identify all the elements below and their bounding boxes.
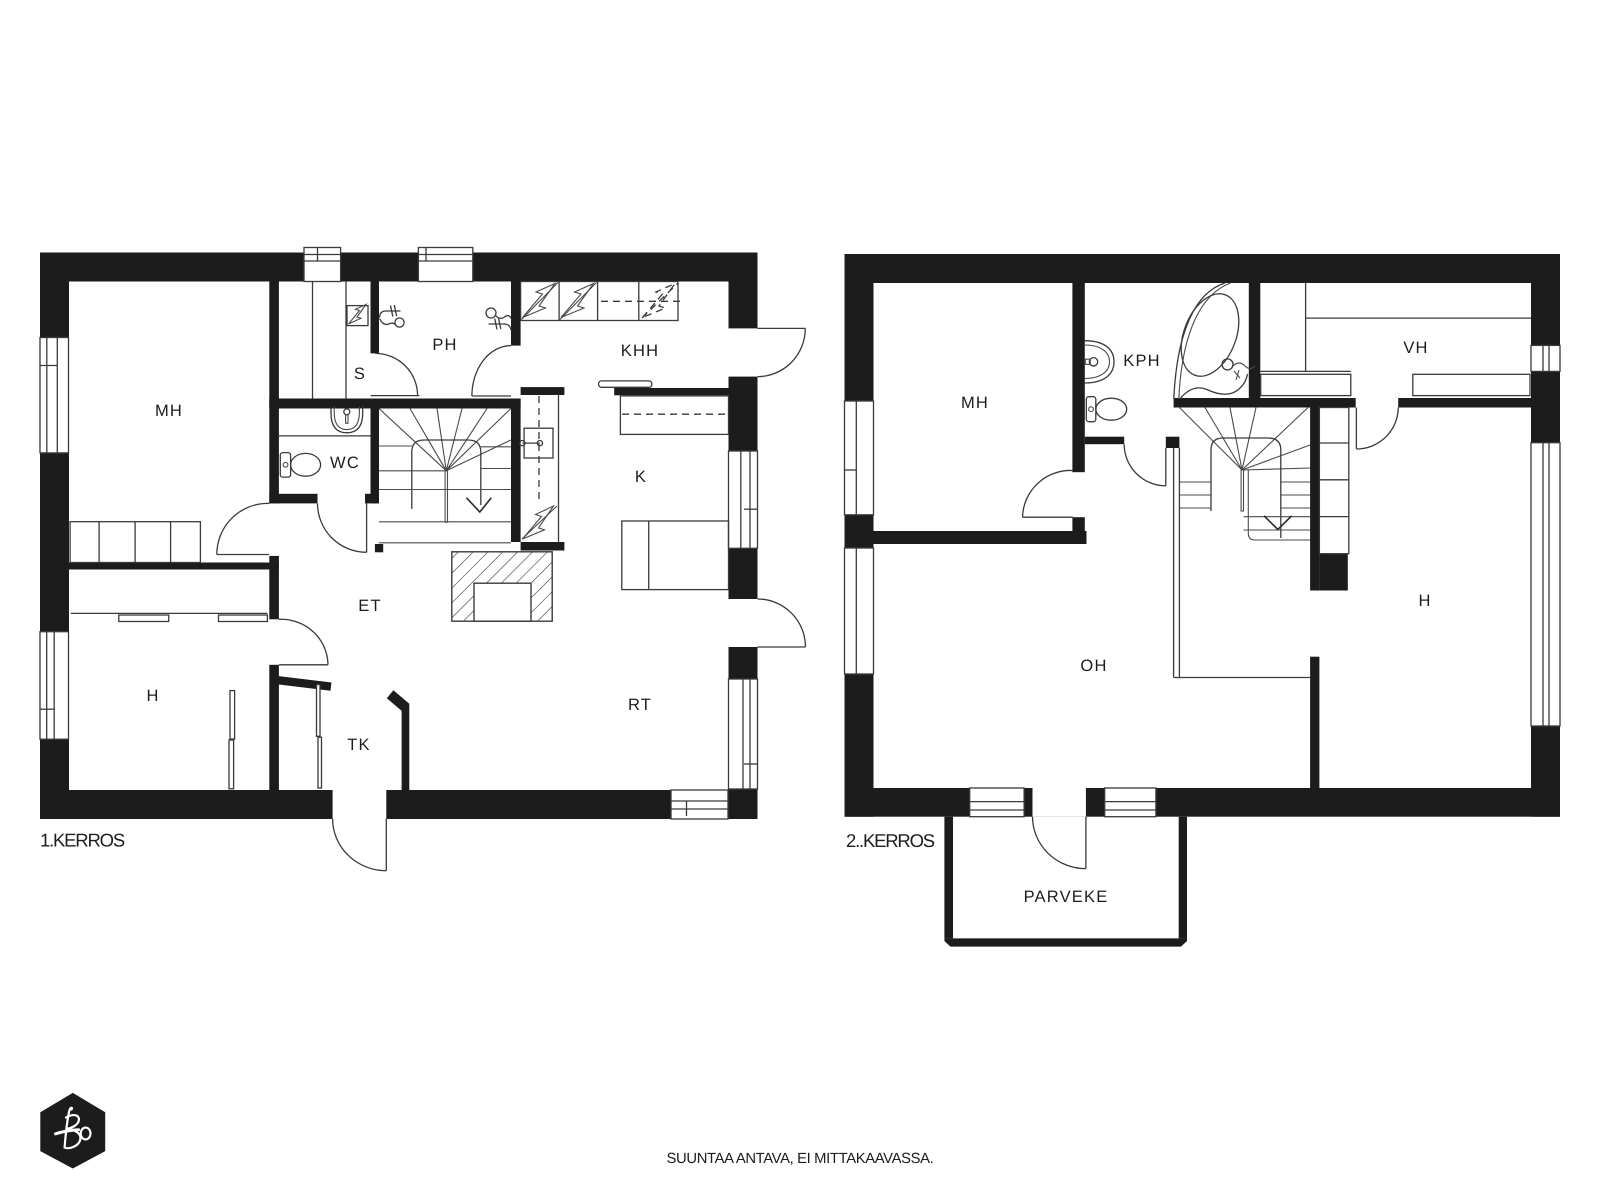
svg-text:SUUNTAA ANTAVA, EI MITTAKAAVAS: SUUNTAA ANTAVA, EI MITTAKAAVASSA. <box>667 1151 934 1167</box>
svg-text:S: S <box>354 365 366 383</box>
svg-text:MH: MH <box>155 402 183 420</box>
svg-text:TK: TK <box>347 736 370 754</box>
svg-text:K: K <box>635 468 647 486</box>
svg-text:H: H <box>1418 592 1431 610</box>
svg-text:WC: WC <box>330 454 360 472</box>
svg-text:ET: ET <box>358 597 381 615</box>
svg-text:MH: MH <box>961 394 989 412</box>
svg-text:RT: RT <box>628 696 652 714</box>
svg-text:2..KERROS: 2..KERROS <box>846 830 935 851</box>
svg-text:H: H <box>146 687 159 705</box>
svg-text:1.KERROS: 1.KERROS <box>40 830 125 851</box>
svg-text:VH: VH <box>1403 339 1428 357</box>
svg-text:OH: OH <box>1080 657 1107 675</box>
svg-text:PH: PH <box>432 336 457 354</box>
svg-text:KPH: KPH <box>1123 352 1161 370</box>
svg-text:KHH: KHH <box>621 342 659 360</box>
svg-text:PARVEKE: PARVEKE <box>1024 888 1109 906</box>
